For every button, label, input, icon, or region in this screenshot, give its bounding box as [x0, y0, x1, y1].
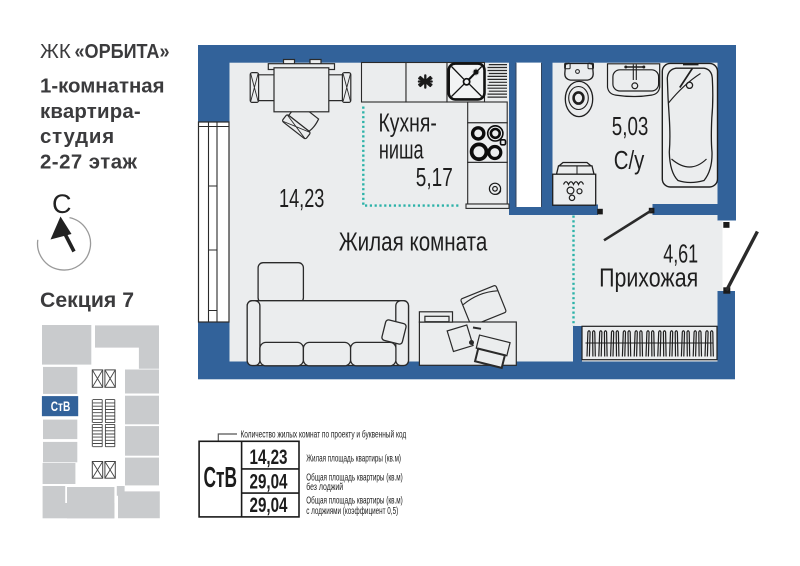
svg-text:Секция 7: Секция 7	[40, 289, 134, 312]
svg-text:Общая площадь квартиры (кв.м): Общая площадь квартиры (кв.м)	[306, 495, 403, 506]
svg-text:Жилая комната: Жилая комната	[339, 228, 488, 256]
svg-text:29,04: 29,04	[250, 493, 288, 517]
svg-text:Количество жилых комнат по про: Количество жилых комнат по проекту и бук…	[241, 430, 407, 441]
svg-text:5,03: 5,03	[612, 113, 649, 141]
svg-text:ЖК: ЖК	[40, 41, 71, 63]
svg-text:29,04: 29,04	[250, 469, 288, 493]
svg-text:с лоджиями (коэффициент 0,5): с лоджиями (коэффициент 0,5)	[306, 506, 398, 517]
svg-text:1-комнатная: 1-комнатная	[40, 76, 165, 98]
svg-text:без лоджий: без лоджий	[306, 482, 343, 493]
svg-text:Кухня-: Кухня-	[379, 110, 437, 138]
svg-text:ниша: ниша	[379, 137, 424, 165]
svg-text:2-27 этаж: 2-27 этаж	[40, 151, 138, 173]
svg-text:«ОРБИТА»: «ОРБИТА»	[75, 41, 170, 63]
svg-text:С: С	[52, 189, 72, 219]
svg-text:14,23: 14,23	[250, 445, 288, 469]
svg-text:студия: студия	[40, 126, 114, 148]
svg-text:СтВ: СтВ	[204, 462, 238, 494]
svg-text:квартира-: квартира-	[40, 101, 141, 123]
svg-text:С/у: С/у	[614, 147, 645, 175]
svg-text:14,23: 14,23	[279, 185, 324, 213]
svg-text:Прихожая: Прихожая	[599, 265, 698, 293]
svg-text:Жилая площадь квартиры (кв.м): Жилая площадь квартиры (кв.м)	[306, 454, 401, 465]
svg-text:СтВ: СтВ	[51, 399, 71, 414]
svg-text:5,17: 5,17	[416, 164, 453, 192]
